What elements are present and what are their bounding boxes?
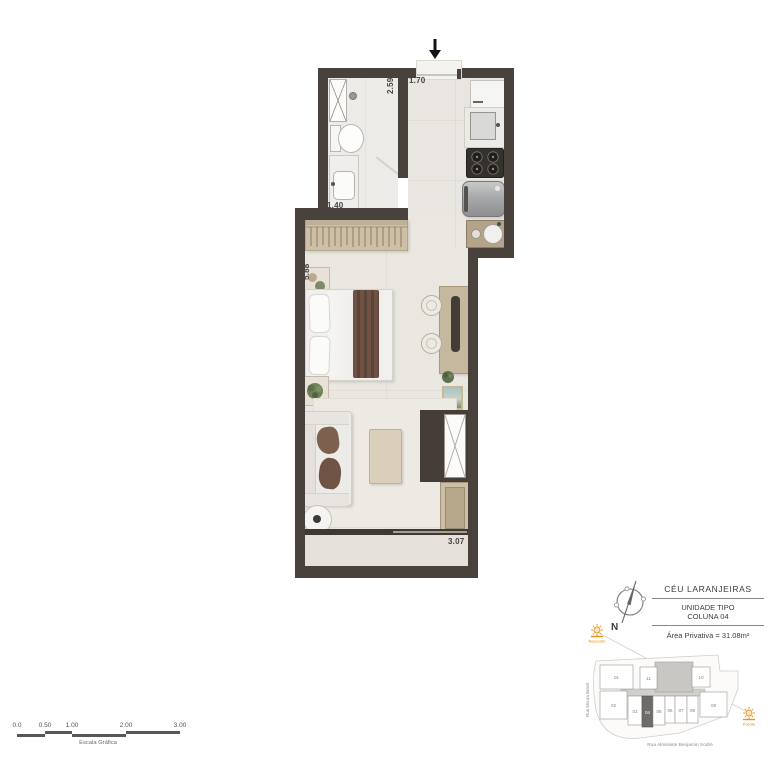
entry-arrow-icon bbox=[427, 38, 443, 60]
scale-tick-label: 2.00 bbox=[120, 722, 133, 729]
unit-number-highlighted: 04 bbox=[645, 710, 651, 715]
scale-tick-label: 1.00 bbox=[66, 722, 79, 729]
dimension-living-length: 5.88 bbox=[302, 264, 311, 280]
coffee-table bbox=[369, 429, 402, 484]
toilet-bowl bbox=[338, 124, 364, 153]
balcony-glass-door bbox=[393, 531, 467, 533]
fridge-handle bbox=[473, 101, 483, 103]
wall-bottom bbox=[295, 566, 478, 578]
dimension-bath-width: 1.40 bbox=[327, 201, 343, 210]
washing-machine bbox=[462, 181, 505, 217]
scale-tick-label: 0.50 bbox=[39, 722, 52, 729]
dimension-entry-width: 1.70 bbox=[409, 76, 425, 85]
sofa-armrest bbox=[303, 412, 349, 425]
unit-number: 08 bbox=[711, 703, 717, 708]
unit-number: 11 bbox=[646, 676, 651, 681]
dimension-bath-length: 2.59 bbox=[386, 78, 395, 94]
kitchen-sink bbox=[470, 112, 496, 140]
fridge bbox=[470, 80, 506, 108]
keyplan-core bbox=[655, 662, 693, 692]
sun-west-label: Poente bbox=[743, 722, 756, 727]
shower-head-icon bbox=[349, 92, 357, 100]
bar-counter bbox=[439, 286, 470, 374]
project-name: CÉU LARANJEIRAS bbox=[652, 584, 764, 599]
unit-number: 10 bbox=[698, 675, 704, 680]
street-label-left: Rua Moura Brasil bbox=[585, 683, 590, 717]
scale-caption: Escala Gráfica bbox=[79, 740, 117, 746]
bar-stool bbox=[421, 295, 442, 316]
entry-door-jamb bbox=[457, 69, 461, 79]
bed-pillow bbox=[308, 294, 330, 334]
scale-tick-label: 3.00 bbox=[174, 722, 187, 729]
closet-wardrobe bbox=[305, 219, 408, 251]
stool-seat-ring bbox=[426, 338, 437, 349]
unit-number: 01 bbox=[614, 675, 620, 680]
washer-knob-icon bbox=[495, 186, 500, 191]
unit-number: 09 bbox=[690, 708, 696, 713]
wall-bathroom-hall bbox=[398, 68, 408, 178]
laundry-sink bbox=[483, 224, 503, 244]
scale-segment bbox=[45, 731, 72, 734]
unit-type-line1: UNIDADE TIPO bbox=[652, 603, 764, 612]
floorplan-sheet: 2.59 1.70 1.40 5.88 0.60 3.07 N CÉU LARA… bbox=[0, 0, 768, 757]
unit-number: 05 bbox=[656, 709, 662, 714]
graphic-scale: 0.0 0.50 1.00 2.00 3.00 Escala Gráfica bbox=[12, 722, 192, 752]
bar-tray bbox=[451, 296, 460, 352]
vanity-sink bbox=[333, 171, 355, 200]
tv-cabinet bbox=[420, 410, 468, 482]
dimension-balcony-width: 3.07 bbox=[448, 537, 464, 546]
cabinet-shelf bbox=[445, 487, 465, 529]
sliding-door-panel-icon bbox=[444, 414, 466, 478]
kitchen-faucet-icon bbox=[496, 123, 500, 127]
unit-number: 03 bbox=[632, 709, 638, 714]
wall-right-lower bbox=[468, 248, 478, 578]
bar-stool bbox=[421, 333, 442, 354]
unit-number: 02 bbox=[611, 703, 617, 708]
vanity-faucet-icon bbox=[331, 182, 335, 186]
sofa-armrest bbox=[303, 493, 349, 506]
street-label-bottom: Rua Almirante Benjamin Sodré bbox=[647, 742, 713, 748]
balcony-floor bbox=[305, 532, 468, 566]
balcony-rail bbox=[305, 529, 468, 535]
site-key-plan: 01 11 10 02 03 04 05 06 07 09 08 Nascent… bbox=[580, 615, 768, 757]
washer-door-edge bbox=[464, 186, 468, 212]
sun-west-icon bbox=[743, 707, 755, 720]
laundry-soap-icon bbox=[471, 229, 481, 239]
unit-number: 07 bbox=[678, 708, 684, 713]
unit-number: 06 bbox=[667, 708, 673, 713]
sofa-cushion-brown bbox=[317, 457, 343, 490]
tile-joint bbox=[365, 78, 366, 208]
bed-throw-blanket bbox=[353, 290, 379, 378]
scale-segment bbox=[72, 734, 126, 737]
wall-left-upper bbox=[318, 68, 328, 218]
sofa-cushion-brown bbox=[315, 426, 341, 456]
tile-joint bbox=[455, 78, 456, 248]
laundry-cabinet bbox=[466, 220, 506, 248]
laundry-faucet-icon bbox=[497, 222, 501, 226]
stool-seat-ring bbox=[426, 300, 437, 311]
shower-box-icon bbox=[329, 79, 347, 122]
sofa bbox=[300, 411, 352, 506]
wall-bathroom-bottom bbox=[295, 208, 408, 220]
lamp-icon bbox=[313, 515, 321, 523]
bed bbox=[305, 289, 393, 381]
dimension-balcony-depth: 0.60 bbox=[298, 547, 307, 563]
scale-segment bbox=[126, 731, 180, 734]
cooktop-icon bbox=[466, 148, 504, 178]
bed-pillow bbox=[308, 336, 330, 376]
scale-segment bbox=[17, 734, 45, 737]
low-cabinet bbox=[440, 482, 470, 532]
plant-icon bbox=[441, 370, 455, 384]
sun-east-label: Nascente bbox=[589, 639, 607, 644]
wall-right-kitchen bbox=[504, 68, 514, 258]
scale-tick-label: 0.0 bbox=[12, 722, 21, 729]
